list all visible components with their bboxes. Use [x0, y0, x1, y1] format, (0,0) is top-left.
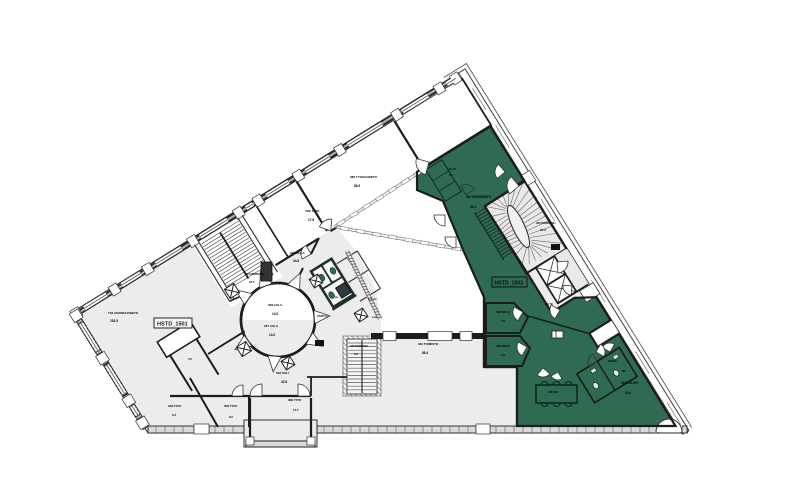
svg-text:007 AULA: 007 AULA	[264, 324, 279, 328]
svg-text:(TK/PPU): (TK/PPU)	[317, 315, 328, 318]
svg-text:5.2: 5.2	[354, 352, 358, 356]
svg-text:048 SALI: 048 SALI	[276, 371, 289, 375]
svg-text:T03 ASUINHUONETO: T03 ASUINHUONETO	[108, 311, 139, 315]
svg-text:088 TYOHUONETO: 088 TYOHUONETO	[350, 175, 378, 179]
svg-text:04B TSTO: 04B TSTO	[168, 404, 182, 408]
svg-text:06B TSTO: 06B TSTO	[288, 398, 302, 402]
svg-text:24.3: 24.3	[540, 228, 546, 232]
svg-text:WC: WC	[335, 297, 339, 299]
svg-text:02B NEUH: 02B NEUH	[496, 344, 510, 348]
svg-text:HSTD_1503: HSTD_1503	[495, 281, 524, 287]
svg-text:13.0: 13.0	[269, 333, 275, 337]
svg-text:43.8: 43.8	[281, 380, 287, 384]
svg-text:17.5: 17.5	[293, 408, 299, 412]
svg-text:5.0: 5.0	[501, 353, 505, 357]
svg-text:86.4: 86.4	[422, 351, 428, 355]
svg-text:01B OLOH: 01B OLOH	[621, 381, 639, 385]
svg-text:103.5: 103.5	[110, 319, 118, 323]
svg-text:02B NEUH: 02B NEUH	[496, 310, 510, 314]
svg-text:14.5: 14.5	[272, 312, 278, 316]
svg-text:24B AULA: 24B AULA	[290, 251, 305, 255]
svg-text:9.2: 9.2	[172, 413, 176, 417]
svg-text:8.0: 8.0	[229, 415, 233, 419]
svg-text:B.07 WC: B.07 WC	[368, 299, 377, 301]
svg-text:88.9: 88.9	[354, 184, 360, 188]
svg-text:010 HUONEISTO: 010 HUONEISTO	[466, 195, 492, 199]
svg-text:05B TSTO: 05B TSTO	[224, 404, 238, 408]
svg-text:A.2B: A.2B	[372, 316, 377, 319]
svg-text:4.5: 4.5	[188, 357, 192, 361]
svg-text:033 PORRASH: 033 PORRASH	[536, 221, 555, 225]
svg-text:24.8: 24.8	[293, 259, 299, 263]
svg-text:17.8: 17.8	[308, 218, 314, 222]
svg-text:WC: WC	[622, 370, 626, 373]
svg-text:B.05: B.05	[330, 281, 335, 283]
svg-text:008 AULA: 008 AULA	[268, 303, 283, 307]
svg-text:T2B TSTO: T2B TSTO	[305, 209, 320, 213]
svg-text:015 NEU: 015 NEU	[548, 390, 559, 394]
svg-text:44.5: 44.5	[249, 280, 255, 284]
svg-text:HSTD_1501: HSTD_1501	[157, 322, 188, 328]
svg-text:035 PORRASH: 035 PORRASH	[350, 344, 368, 348]
svg-text:022 TOIMISTO: 022 TOIMISTO	[418, 342, 439, 346]
svg-text:30.5: 30.5	[625, 391, 631, 395]
svg-text:5.0: 5.0	[501, 319, 505, 323]
svg-text:034 PORRASH: 034 PORRASH	[245, 272, 264, 276]
svg-text:49.4: 49.4	[470, 205, 476, 209]
svg-text:A.01 VH: A.01 VH	[447, 168, 456, 171]
svg-text:03B WC: 03B WC	[608, 360, 617, 363]
svg-text:021 TK: 021 TK	[545, 303, 553, 306]
